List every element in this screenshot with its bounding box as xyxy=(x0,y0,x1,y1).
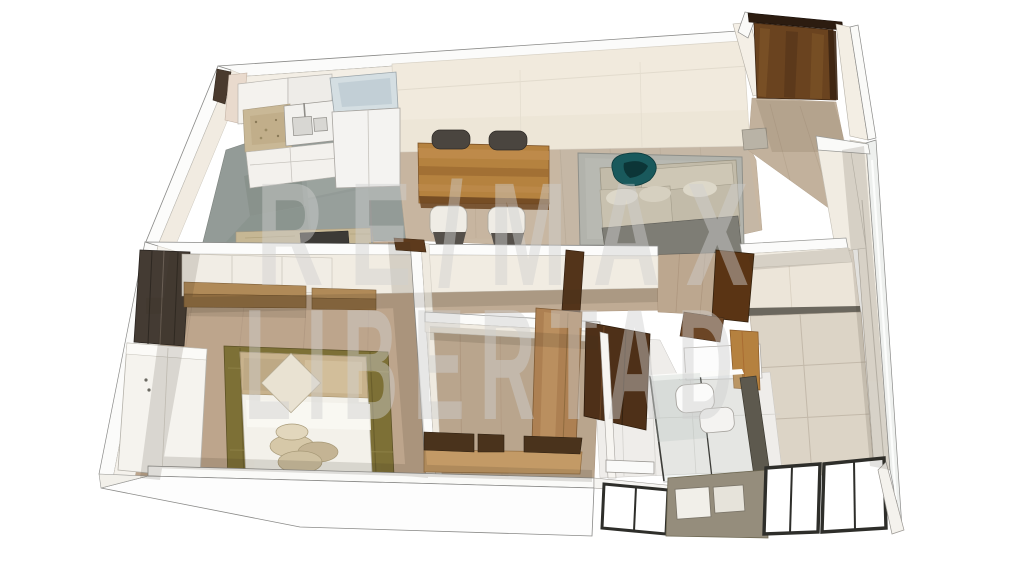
svg-text:LIBERTAD: LIBERTAD xyxy=(244,277,748,453)
